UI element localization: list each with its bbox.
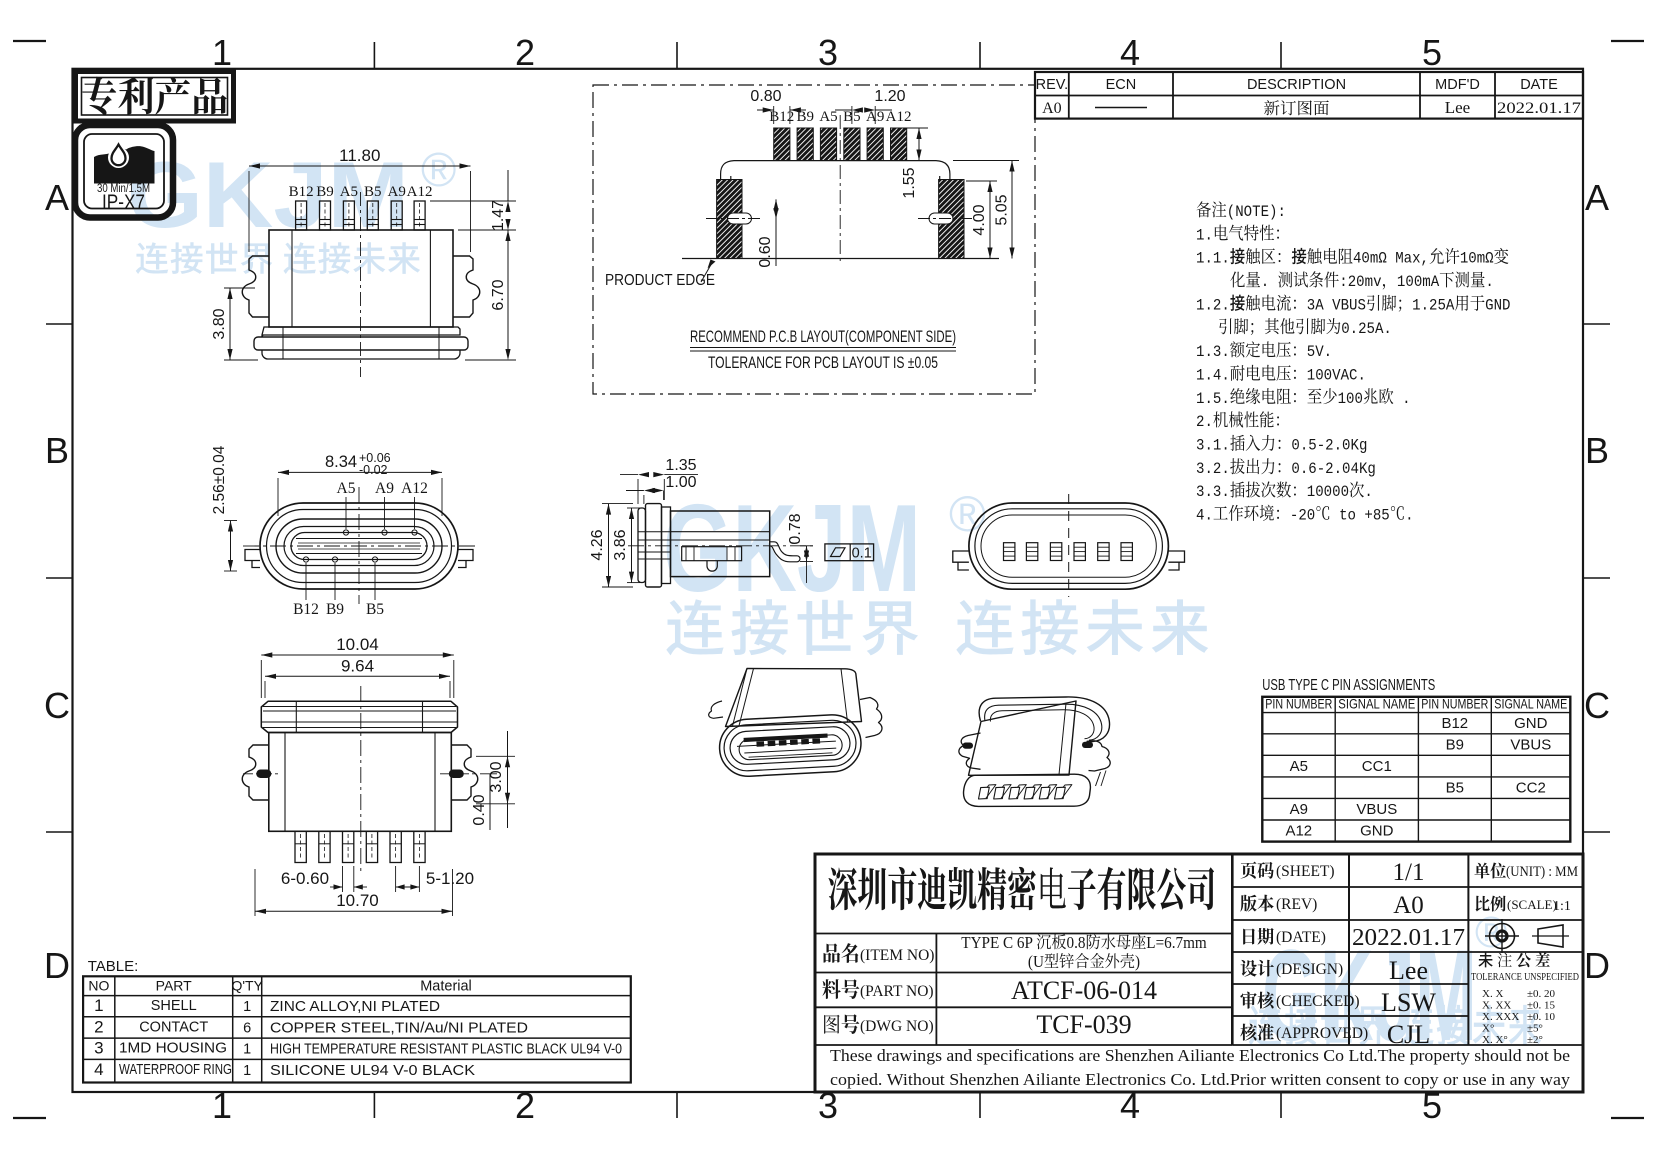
svg-text:TOLERANCE FOR PCB LAYOUT IS ±0: TOLERANCE FOR PCB LAYOUT IS ±0.05 [708, 354, 938, 372]
svg-text:B: B [1585, 430, 1609, 471]
svg-text:DATE: DATE [1520, 77, 1558, 93]
svg-text:±0. 10: ±0. 10 [1527, 1011, 1556, 1023]
svg-text:A0: A0 [1042, 100, 1062, 117]
svg-text:0.8: 0.8 [1067, 934, 1086, 952]
svg-text:100: 100 [1338, 389, 1363, 408]
svg-text:X. XX: X. XX [1482, 1000, 1511, 1012]
svg-text:3: 3 [818, 32, 838, 73]
svg-text:to +85: to +85 [1331, 506, 1390, 525]
svg-text:4.: 4. [1196, 506, 1213, 525]
svg-text:GND: GND [1360, 823, 1394, 840]
svg-text:3.3.: 3.3. [1196, 482, 1230, 501]
svg-text:GND: GND [1485, 296, 1510, 315]
svg-text:PIN NUMBER: PIN NUMBER [1421, 697, 1488, 712]
svg-text:(U: (U [1028, 953, 1045, 971]
svg-text:11.80: 11.80 [339, 146, 380, 165]
svg-text:CJL: CJL [1387, 1020, 1430, 1049]
svg-text:3.80: 3.80 [211, 308, 228, 339]
svg-text:A5: A5 [337, 480, 356, 497]
svg-text:3.1.: 3.1. [1196, 436, 1230, 455]
svg-text:5: 5 [1422, 32, 1442, 73]
svg-text:5.05: 5.05 [994, 194, 1011, 225]
svg-text:Lee: Lee [1445, 98, 1470, 117]
svg-text:1.00: 1.00 [665, 474, 696, 491]
svg-text:ECN: ECN [1106, 77, 1137, 93]
svg-text:(CHECKED): (CHECKED) [1276, 993, 1360, 1010]
svg-text:CC1: CC1 [1362, 758, 1392, 775]
svg-text:6: 6 [243, 1020, 251, 1036]
svg-text:3.86: 3.86 [612, 529, 629, 560]
svg-text:B5: B5 [1446, 779, 1464, 796]
svg-text:Lee: Lee [1389, 956, 1428, 985]
svg-text:40mΩ Max,: 40mΩ Max, [1353, 249, 1429, 268]
svg-text:A12: A12 [401, 480, 428, 497]
svg-text:1.: 1. [1196, 225, 1213, 244]
svg-text:X°: X° [1482, 1023, 1494, 1035]
svg-text:-0.02: -0.02 [359, 463, 388, 477]
svg-text:3.00: 3.00 [488, 761, 505, 792]
svg-text:1.2.: 1.2. [1196, 296, 1230, 315]
svg-text:TOLERANCE UNSPECIFIED: TOLERANCE UNSPECIFIED [1471, 971, 1579, 983]
svg-text:0.78: 0.78 [787, 513, 804, 544]
svg-text:±5°: ±5° [1527, 1023, 1543, 1035]
svg-text:4.00: 4.00 [971, 204, 988, 235]
svg-text:A9: A9 [388, 184, 406, 200]
svg-text:1: 1 [94, 996, 103, 1015]
svg-text:®: ® [949, 486, 986, 542]
svg-text:PIN NUMBER: PIN NUMBER [1265, 697, 1332, 712]
svg-text:1.35: 1.35 [665, 457, 696, 474]
svg-text:0.40: 0.40 [471, 794, 488, 825]
svg-text:(SHEET): (SHEET) [1276, 863, 1335, 880]
svg-text:±0. 20: ±0. 20 [1527, 988, 1556, 1000]
svg-text:C: C [1584, 685, 1610, 726]
svg-text:6-0.60: 6-0.60 [281, 869, 329, 888]
svg-text:CONTACT: CONTACT [139, 1019, 208, 1035]
svg-text:USB TYPE C PIN ASSIGNMENTS: USB TYPE C PIN ASSIGNMENTS [1262, 677, 1435, 694]
svg-text:.: . [1485, 272, 1493, 291]
svg-text:4: 4 [1120, 32, 1140, 73]
svg-text:0.6-2.04Kg: 0.6-2.04Kg [1291, 459, 1375, 478]
svg-text:REV.: REV. [1036, 77, 1069, 93]
svg-text:(DATE): (DATE) [1276, 929, 1326, 946]
svg-text:1.47: 1.47 [490, 200, 507, 231]
svg-text:SILICONE UL94 V-0 BLACK: SILICONE UL94 V-0 BLACK [270, 1063, 475, 1079]
svg-text:9.64: 9.64 [341, 657, 374, 676]
svg-text:ATCF-06-014: ATCF-06-014 [1011, 976, 1157, 1005]
svg-text:10.70: 10.70 [336, 891, 379, 910]
svg-text:A: A [1585, 177, 1609, 218]
svg-text:1: 1 [243, 1042, 251, 1058]
svg-text:CC2: CC2 [1516, 779, 1546, 796]
svg-text:±2°: ±2° [1527, 1034, 1543, 1046]
svg-text:DESCRIPTION: DESCRIPTION [1247, 77, 1346, 93]
svg-text:MDF'D: MDF'D [1435, 77, 1480, 93]
svg-text:A12: A12 [1285, 823, 1312, 840]
svg-text:GND: GND [1514, 715, 1548, 732]
svg-text:C: C [44, 685, 70, 726]
svg-text:A5: A5 [819, 109, 837, 125]
svg-text:(DESIGN): (DESIGN) [1276, 961, 1343, 978]
svg-text:A9: A9 [1290, 801, 1308, 818]
svg-text:-20: -20 [1290, 506, 1315, 525]
svg-text:6.70: 6.70 [490, 279, 507, 310]
svg-text:1: 1 [212, 32, 232, 73]
svg-text:±0. 15: ±0. 15 [1527, 1000, 1556, 1012]
svg-text:1: 1 [243, 1063, 251, 1079]
svg-text:A5: A5 [340, 184, 358, 200]
svg-text:(REV): (REV) [1276, 896, 1317, 913]
svg-text:B9: B9 [1446, 736, 1464, 753]
svg-text:1.25A: 1.25A [1412, 296, 1455, 315]
svg-text:(ITEM NO): (ITEM NO) [860, 947, 934, 964]
svg-text:(UNIT) : MM: (UNIT) : MM [1506, 864, 1578, 880]
svg-text:1.55: 1.55 [901, 167, 918, 198]
svg-text:B9: B9 [316, 184, 334, 200]
svg-text:2: 2 [515, 1085, 535, 1126]
svg-text:B12: B12 [289, 184, 314, 200]
svg-text:5-1.20: 5-1.20 [426, 869, 474, 888]
svg-text:8.34: 8.34 [325, 453, 357, 471]
svg-text:(DWG NO): (DWG NO) [860, 1018, 934, 1035]
svg-text:Material: Material [420, 979, 472, 995]
svg-text:B: B [45, 430, 69, 471]
svg-text:WATERPROOF RING: WATERPROOF RING [119, 1062, 232, 1078]
svg-text:0.5-2.0Kg: 0.5-2.0Kg [1291, 436, 1367, 455]
svg-text:10.04: 10.04 [336, 635, 379, 654]
svg-text:SIGNAL NAME: SIGNAL NAME [1494, 697, 1567, 712]
svg-text:(SCALE): (SCALE) [1507, 897, 1557, 912]
svg-text:A9: A9 [375, 480, 394, 497]
svg-text:100VAC.: 100VAC. [1307, 366, 1366, 385]
svg-text:3A VBUS: 3A VBUS [1307, 296, 1366, 315]
svg-text:1.20: 1.20 [874, 88, 905, 105]
svg-text:3: 3 [94, 1039, 103, 1058]
svg-text:(APPROVED): (APPROVED) [1276, 1025, 1368, 1042]
svg-text:A0: A0 [1393, 892, 1424, 919]
svg-text:.: . [1394, 389, 1411, 408]
svg-text:5V.: 5V. [1307, 342, 1332, 361]
svg-text:B5: B5 [364, 184, 382, 200]
svg-text:.: . [1261, 272, 1278, 291]
svg-text:1/1: 1/1 [1393, 859, 1425, 886]
svg-text:1.5.: 1.5. [1196, 389, 1230, 408]
svg-text:0.80: 0.80 [750, 88, 781, 105]
svg-text:1:1: 1:1 [1553, 899, 1571, 914]
svg-text:VBUS: VBUS [1356, 801, 1397, 818]
svg-text:COPPER STEEL,TIN/Au/NI PLATED: COPPER STEEL,TIN/Au/NI PLATED [270, 1020, 528, 1036]
svg-text:): ) [1135, 953, 1140, 971]
svg-text:2: 2 [94, 1017, 103, 1036]
svg-text:TCF-039: TCF-039 [1036, 1010, 1131, 1039]
svg-text:A12: A12 [407, 184, 433, 200]
svg-text:0.60: 0.60 [757, 236, 774, 267]
svg-text:L=6.7mm: L=6.7mm [1146, 934, 1207, 952]
svg-text:2022.01.17: 2022.01.17 [1352, 925, 1465, 951]
svg-text:10000: 10000 [1307, 482, 1349, 501]
svg-text:D: D [44, 945, 70, 986]
svg-text:SHELL: SHELL [151, 998, 197, 1014]
svg-text:(NOTE):: (NOTE): [1227, 202, 1286, 221]
svg-text:GKJM: GKJM [663, 479, 921, 618]
svg-text:B9: B9 [326, 601, 344, 618]
svg-text:PART: PART [156, 978, 192, 994]
svg-text:NO: NO [88, 978, 109, 994]
svg-text:.: . [1364, 482, 1372, 501]
svg-text:VBUS: VBUS [1510, 736, 1551, 753]
svg-text:A: A [45, 177, 69, 218]
svg-text:These drawings and specificati: These drawings and specifications are Sh… [830, 1046, 1570, 1065]
svg-text:X. X°: X. X° [1482, 1034, 1508, 1046]
svg-text:copied. Without Shenzhen Ailia: copied. Without Shenzhen Ailiante Electr… [830, 1070, 1571, 1089]
svg-text:LSW: LSW [1381, 988, 1436, 1017]
svg-text:ZINC ALLOY,NI PLATED: ZINC ALLOY,NI PLATED [270, 999, 440, 1015]
svg-text:B5: B5 [366, 601, 384, 618]
svg-text:Q'TY: Q'TY [231, 978, 263, 994]
svg-text:3.2.: 3.2. [1196, 459, 1230, 478]
svg-text:A5: A5 [1290, 758, 1308, 775]
svg-text:0.25A.: 0.25A. [1341, 319, 1392, 338]
svg-text:1MD HOUSING: 1MD HOUSING [119, 1041, 227, 1057]
svg-text:SIGNAL NAME: SIGNAL NAME [1338, 697, 1415, 712]
svg-text:1.1.: 1.1. [1196, 249, 1230, 268]
svg-text:B12: B12 [769, 109, 794, 125]
svg-text:1.4.: 1.4. [1196, 366, 1230, 385]
svg-text:4: 4 [94, 1060, 103, 1079]
svg-text:B12: B12 [293, 601, 319, 618]
svg-text:2.56±0.04: 2.56±0.04 [211, 445, 228, 514]
svg-text:TYPE C 6P: TYPE C 6P [961, 934, 1036, 952]
svg-text:X. X: X. X [1482, 988, 1503, 1000]
svg-text:1.3.: 1.3. [1196, 342, 1230, 361]
svg-text:10mΩ: 10mΩ [1460, 249, 1494, 268]
svg-text:1: 1 [212, 1085, 232, 1126]
svg-text:1: 1 [243, 999, 251, 1015]
svg-text:2022.01.17: 2022.01.17 [1497, 100, 1581, 117]
svg-text:.: . [1405, 506, 1413, 525]
svg-text:2.: 2. [1196, 412, 1213, 431]
svg-text:IP-X7: IP-X7 [102, 191, 145, 214]
svg-text:0.1: 0.1 [852, 546, 872, 562]
svg-text:RECOMMEND P.C.B LAYOUT(COMPONE: RECOMMEND P.C.B LAYOUT(COMPONENT SIDE) [690, 328, 956, 346]
svg-text:B12: B12 [1441, 715, 1468, 732]
svg-text:X. XXX: X. XXX [1482, 1011, 1519, 1023]
svg-text:PRODUCT EDGE: PRODUCT EDGE [605, 272, 715, 289]
svg-text::20mv: :20mv [1339, 272, 1381, 291]
svg-text:2: 2 [515, 32, 535, 73]
svg-text:A12: A12 [886, 109, 912, 125]
svg-text:(PART NO): (PART NO) [860, 983, 934, 1000]
svg-text:4.26: 4.26 [589, 529, 606, 560]
svg-text:D: D [1584, 945, 1610, 986]
svg-text:TABLE:: TABLE: [88, 958, 139, 975]
svg-text:100mA: 100mA [1397, 272, 1440, 291]
svg-text:HIGH TEMPERATURE RESISTANT PLA: HIGH TEMPERATURE RESISTANT PLASTIC BLACK… [270, 1042, 622, 1058]
